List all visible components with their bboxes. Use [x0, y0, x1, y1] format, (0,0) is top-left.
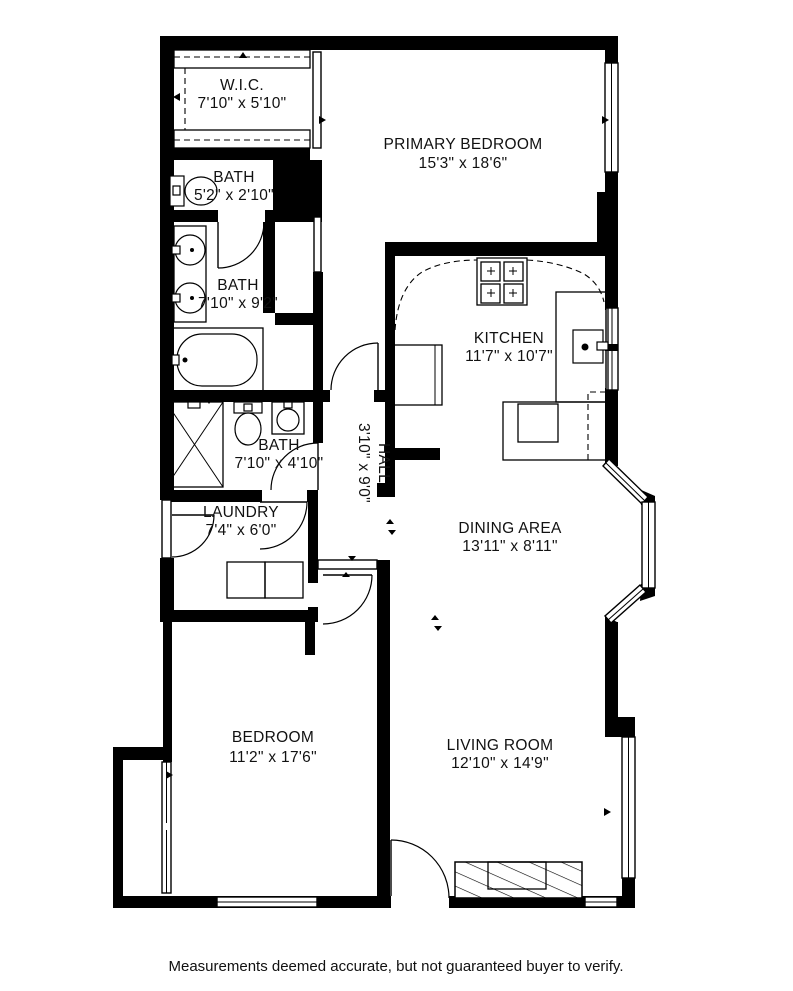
room-label-bath2-dims: 7'10" x 9'2"	[198, 295, 278, 312]
window-icon	[162, 762, 171, 893]
room-label-bath2-name: BATH	[217, 277, 258, 294]
room-label-primary-dims: 15'3" x 18'6"	[419, 155, 508, 172]
room-label-bedroom-name: BEDROOM	[232, 729, 314, 746]
room-label-bath3-name: BATH	[258, 437, 299, 454]
room-label-dining-dims: 13'11" x 8'11"	[462, 538, 558, 555]
window-icon	[605, 63, 618, 172]
room-label-wic-name: W.I.C.	[220, 77, 264, 94]
bathtub-icon	[171, 328, 263, 392]
fireplace-icon	[455, 862, 582, 898]
room-label-kitchen-dims: 11'7" x 10'7"	[465, 348, 553, 365]
room-label-laundry-name: LAUNDRY	[203, 504, 279, 521]
room-label-hall-dims: 3'10" x 9'0"	[355, 423, 372, 503]
room-label-living-dims: 12'10" x 14'9"	[451, 755, 549, 772]
room-label-bath3-dims: 7'10" x 4'10"	[235, 455, 324, 472]
stove-icon	[477, 258, 527, 305]
window-icon	[622, 737, 635, 878]
doorframe-icon	[162, 500, 171, 558]
refrigerator-icon	[393, 345, 442, 405]
room-label-primary-name: PRIMARY BEDROOM	[384, 136, 543, 153]
room-label-living-name: LIVING ROOM	[447, 737, 554, 754]
room-label-bath1-name: BATH	[213, 169, 254, 186]
kitchen-sink-icon	[556, 292, 608, 402]
window-icon	[217, 897, 317, 907]
window-icon	[585, 897, 617, 907]
door-swing-icon	[331, 343, 378, 390]
sink-icon	[272, 402, 304, 434]
room-label-kitchen-name: KITCHEN	[474, 330, 544, 347]
room-label-bath1-dims: 5'2" x 2'10"	[194, 187, 274, 204]
room-label-hall-name: HALL	[375, 443, 392, 483]
room-label-bedroom-dims: 11'2" x 17'6"	[229, 749, 317, 766]
pocket-door-icon	[314, 217, 321, 272]
dryer-icon	[265, 562, 303, 598]
floor-plan-drawing: W.I.C. 7'10" x 5'10" BATH 5'2" x 2'10" B…	[0, 0, 793, 991]
room-label-dining-name: DINING AREA	[458, 520, 562, 537]
washer-icon	[227, 562, 265, 598]
shower-icon	[166, 402, 223, 487]
counter-icon	[503, 402, 607, 460]
pocket-door-icon	[313, 52, 321, 148]
disclaimer-text: Measurements deemed accurate, but not gu…	[169, 958, 624, 975]
room-label-laundry-dims: 7'4" x 6'0"	[205, 522, 276, 539]
cased-opening-icon	[318, 560, 377, 569]
floor-plan-canvas: W.I.C. 7'10" x 5'10" BATH 5'2" x 2'10" B…	[0, 0, 793, 991]
door-swing-icon	[218, 222, 264, 268]
room-label-wic-dims: 7'10" x 5'10"	[198, 95, 287, 112]
door-swing-icon	[391, 840, 449, 898]
door-swing-icon	[323, 575, 372, 624]
